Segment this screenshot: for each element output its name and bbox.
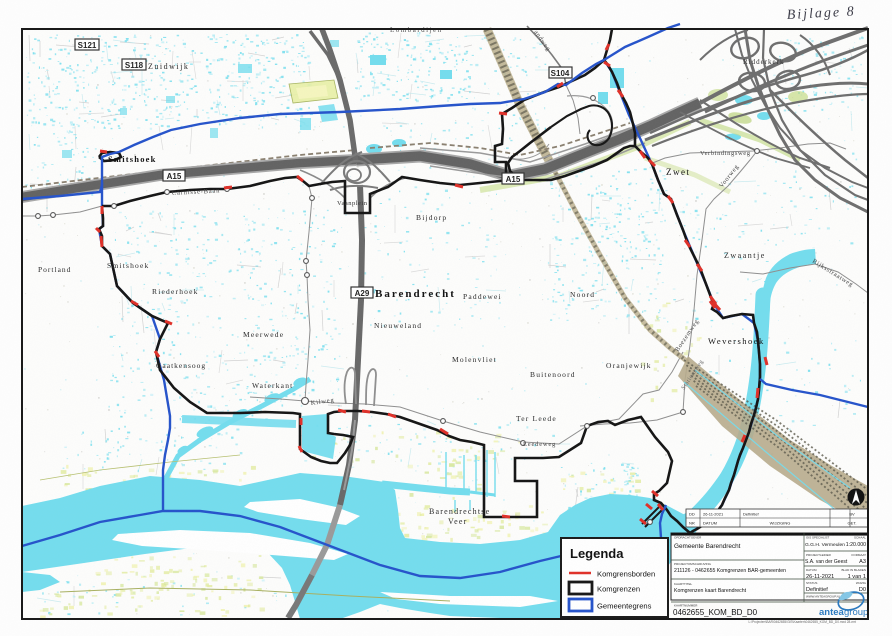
svg-text:L:\Projecten\BAR\0462655\GIS\K: L:\Projecten\BAR\0462655\GIS\Kaarten\046…	[748, 620, 856, 624]
